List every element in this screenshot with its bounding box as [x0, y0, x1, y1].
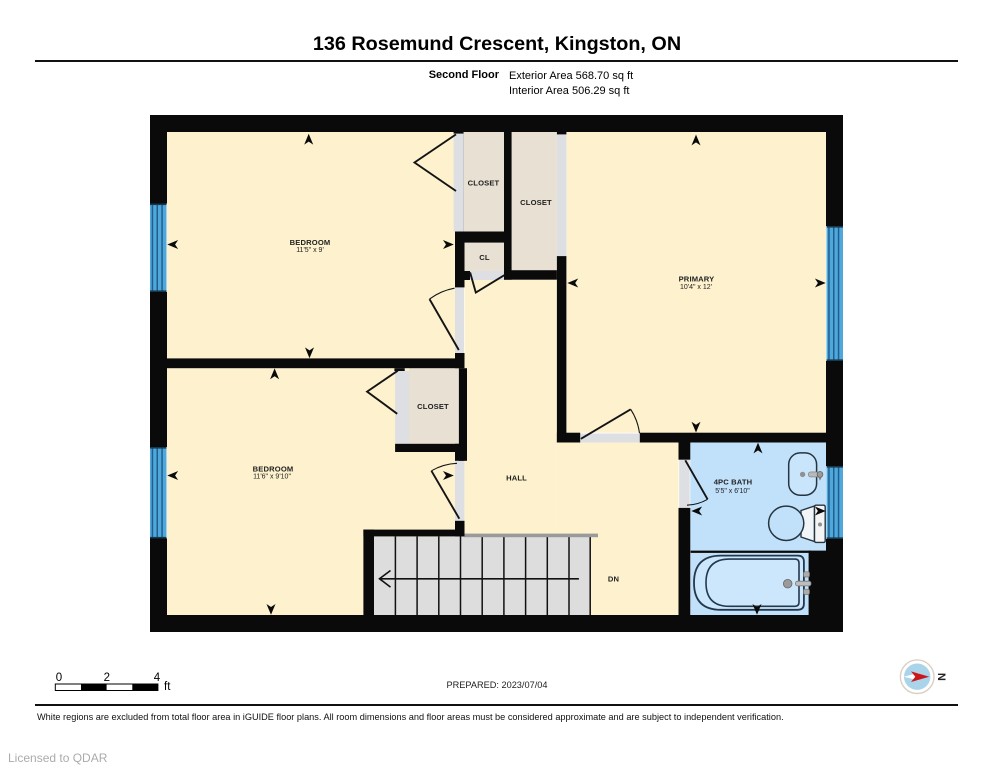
svg-text:PRIMARY: PRIMARY [679, 275, 715, 284]
svg-text:11'5" x 9': 11'5" x 9' [296, 247, 324, 254]
svg-text:BEDROOM: BEDROOM [253, 464, 294, 473]
svg-text:CL: CL [479, 253, 490, 262]
svg-text:11'6" x 9'10": 11'6" x 9'10" [253, 474, 291, 481]
svg-text:4PC BATH: 4PC BATH [714, 478, 753, 487]
svg-text:5'5" x 6'10": 5'5" x 6'10" [715, 488, 750, 495]
svg-text:10'4" x 12': 10'4" x 12' [680, 284, 712, 291]
svg-text:HALL: HALL [506, 474, 527, 483]
svg-text:BEDROOM: BEDROOM [290, 238, 331, 247]
svg-text:CLOSET: CLOSET [468, 178, 500, 187]
svg-text:CLOSET: CLOSET [520, 198, 552, 207]
svg-text:CLOSET: CLOSET [417, 402, 449, 411]
svg-text:DN: DN [608, 575, 619, 584]
